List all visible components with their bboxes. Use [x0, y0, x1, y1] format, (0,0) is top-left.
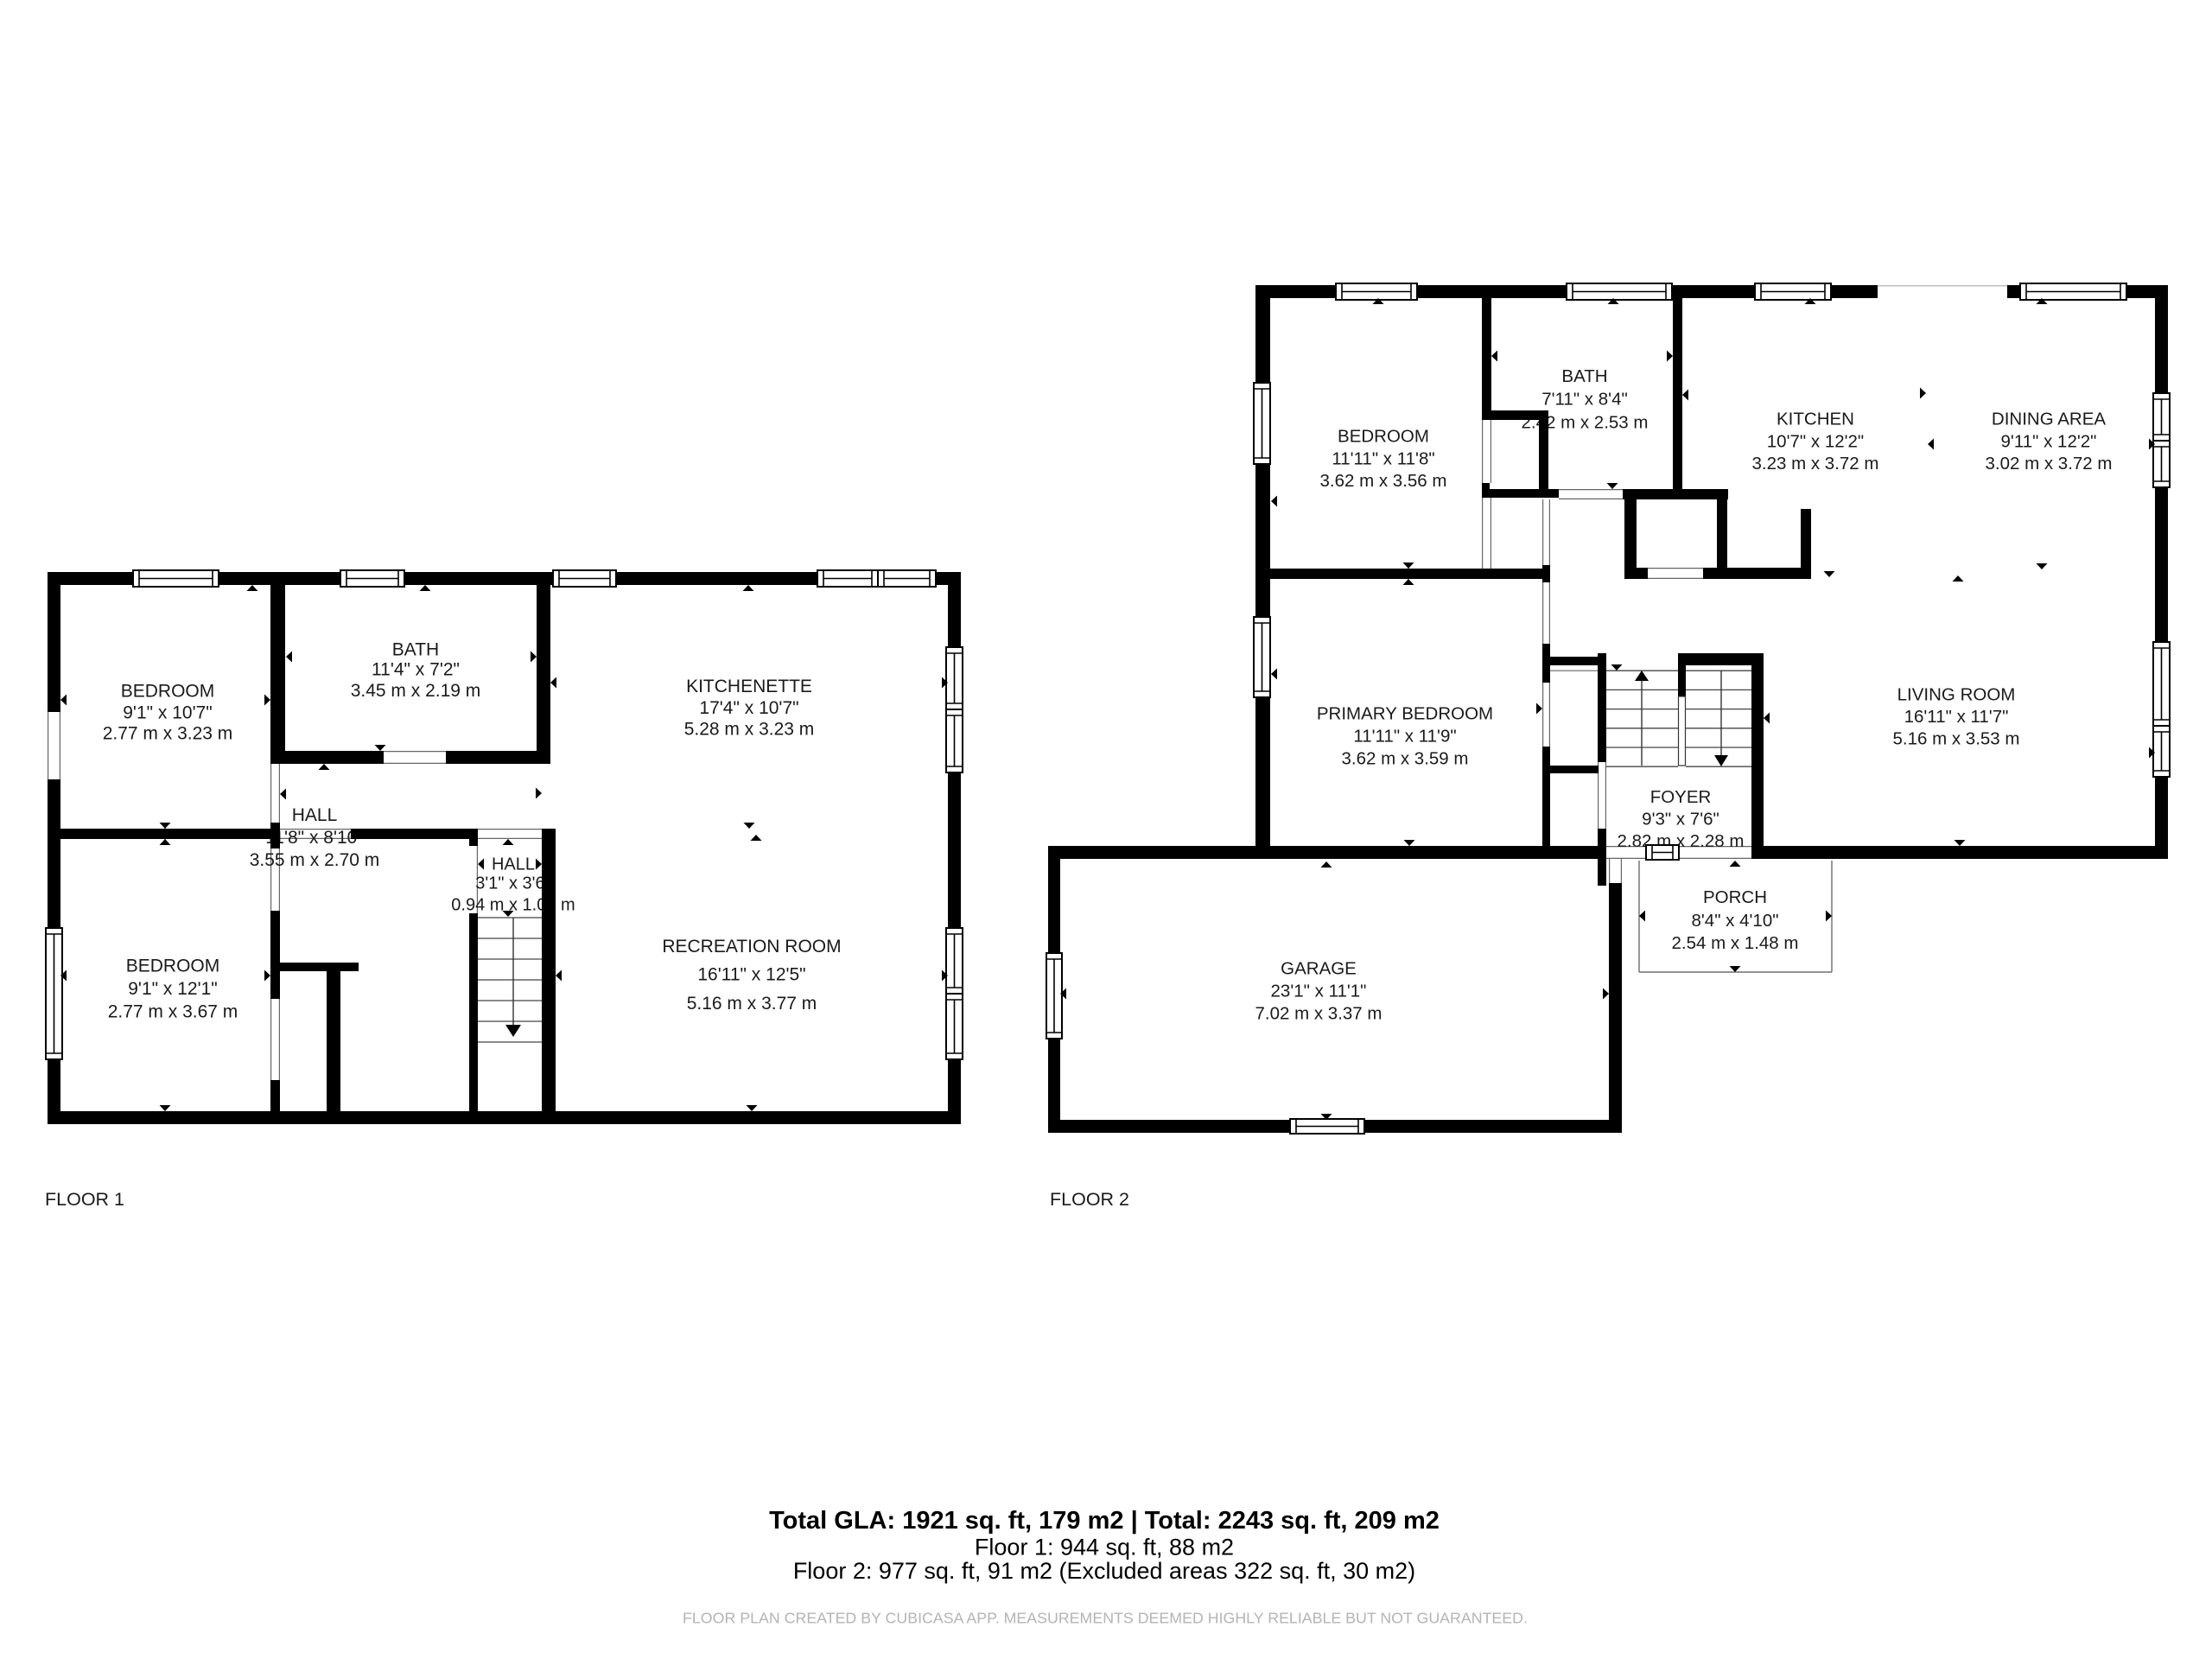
svg-text:3.02 m x 3.72 m: 3.02 m x 3.72 m: [1986, 454, 2113, 474]
svg-text:KITCHEN: KITCHEN: [1777, 410, 1854, 429]
svg-text:FOYER: FOYER: [1650, 787, 1712, 807]
svg-text:3.23 m x 3.72 m: 3.23 m x 3.72 m: [1752, 454, 1879, 474]
svg-text:Floor 1: 944 sq. ft, 88 m2: Floor 1: 944 sq. ft, 88 m2: [975, 1534, 1234, 1560]
svg-text:PORCH: PORCH: [1703, 887, 1767, 907]
svg-text:3.55 m x 2.70 m: 3.55 m x 2.70 m: [250, 850, 380, 870]
svg-text:10'7" x 12'2": 10'7" x 12'2": [1767, 431, 1864, 451]
svg-text:9'3" x 7'6": 9'3" x 7'6": [1642, 810, 1719, 829]
svg-text:11'8" x 8'10": 11'8" x 8'10": [265, 828, 364, 848]
svg-text:RECREATION ROOM: RECREATION ROOM: [662, 937, 841, 957]
svg-text:BEDROOM: BEDROOM: [126, 957, 220, 976]
svg-text:9'1" x 10'7": 9'1" x 10'7": [123, 702, 213, 722]
svg-text:11'11" x 11'9": 11'11" x 11'9": [1353, 727, 1456, 747]
svg-text:5.16 m x 3.53 m: 5.16 m x 3.53 m: [1893, 729, 2020, 749]
svg-text:FLOOR 1: FLOOR 1: [45, 1189, 124, 1210]
svg-text:3.62 m x 3.56 m: 3.62 m x 3.56 m: [1320, 471, 1447, 491]
svg-text:LIVING ROOM: LIVING ROOM: [1897, 684, 2016, 704]
svg-text:17'4" x 10'7": 17'4" x 10'7": [699, 698, 798, 718]
svg-text:KITCHENETTE: KITCHENETTE: [686, 677, 812, 696]
svg-text:7'11" x 8'4": 7'11" x 8'4": [1541, 389, 1628, 409]
svg-text:23'1" x 11'1": 23'1" x 11'1": [1271, 981, 1367, 1001]
svg-text:8'4" x 4'10": 8'4" x 4'10": [1691, 911, 1778, 931]
svg-text:11'11" x 11'8": 11'11" x 11'8": [1332, 449, 1434, 469]
svg-text:BEDROOM: BEDROOM: [1338, 427, 1429, 447]
svg-text:2.77 m x 3.23 m: 2.77 m x 3.23 m: [103, 724, 233, 744]
svg-text:16'11" x 12'5": 16'11" x 12'5": [697, 965, 805, 985]
svg-text:2.82 m x 2.28 m: 2.82 m x 2.28 m: [1618, 831, 1745, 851]
svg-text:2.77 m x 3.67 m: 2.77 m x 3.67 m: [108, 1001, 238, 1021]
svg-text:BEDROOM: BEDROOM: [121, 682, 215, 702]
svg-text:Total GLA: 1921 sq. ft, 179 m2: Total GLA: 1921 sq. ft, 179 m2 | Total: …: [769, 1507, 1440, 1535]
svg-text:11'4" x 7'2": 11'4" x 7'2": [372, 659, 460, 679]
svg-text:9'1" x 12'1": 9'1" x 12'1": [128, 979, 218, 999]
svg-text:16'11" x 11'7": 16'11" x 11'7": [1904, 707, 2009, 727]
svg-text:9'11" x 12'2": 9'11" x 12'2": [2001, 431, 2097, 451]
svg-text:7.02 m x 3.37 m: 7.02 m x 3.37 m: [1255, 1003, 1382, 1023]
svg-text:2.54 m x 1.48 m: 2.54 m x 1.48 m: [1672, 933, 1799, 953]
svg-text:HALL: HALL: [292, 805, 338, 825]
svg-text:3'1" x 3'6": 3'1" x 3'6": [475, 874, 550, 893]
svg-text:3.45 m x 2.19 m: 3.45 m x 2.19 m: [351, 681, 481, 701]
svg-text:5.28 m x 3.23 m: 5.28 m x 3.23 m: [684, 720, 815, 740]
svg-text:BATH: BATH: [392, 639, 439, 659]
svg-text:Floor 2: 977 sq. ft, 91 m2 (Ex: Floor 2: 977 sq. ft, 91 m2 (Excluded are…: [793, 1558, 1415, 1584]
svg-text:PRIMARY BEDROOM: PRIMARY BEDROOM: [1317, 703, 1493, 723]
svg-text:3.62 m x 3.59 m: 3.62 m x 3.59 m: [1342, 749, 1469, 769]
svg-text:5.16 m x 3.77 m: 5.16 m x 3.77 m: [687, 994, 817, 1014]
svg-text:BATH: BATH: [1561, 366, 1607, 386]
svg-text:FLOOR 2: FLOOR 2: [1050, 1189, 1129, 1210]
svg-text:0.94 m x 1.08 m: 0.94 m x 1.08 m: [451, 895, 575, 914]
svg-text:DINING AREA: DINING AREA: [1992, 410, 2106, 429]
svg-text:FLOOR PLAN CREATED BY CUBICASA: FLOOR PLAN CREATED BY CUBICASA APP. MEAS…: [683, 1610, 1528, 1627]
svg-text:HALL: HALL: [492, 855, 535, 874]
svg-text:GARAGE: GARAGE: [1281, 958, 1357, 978]
